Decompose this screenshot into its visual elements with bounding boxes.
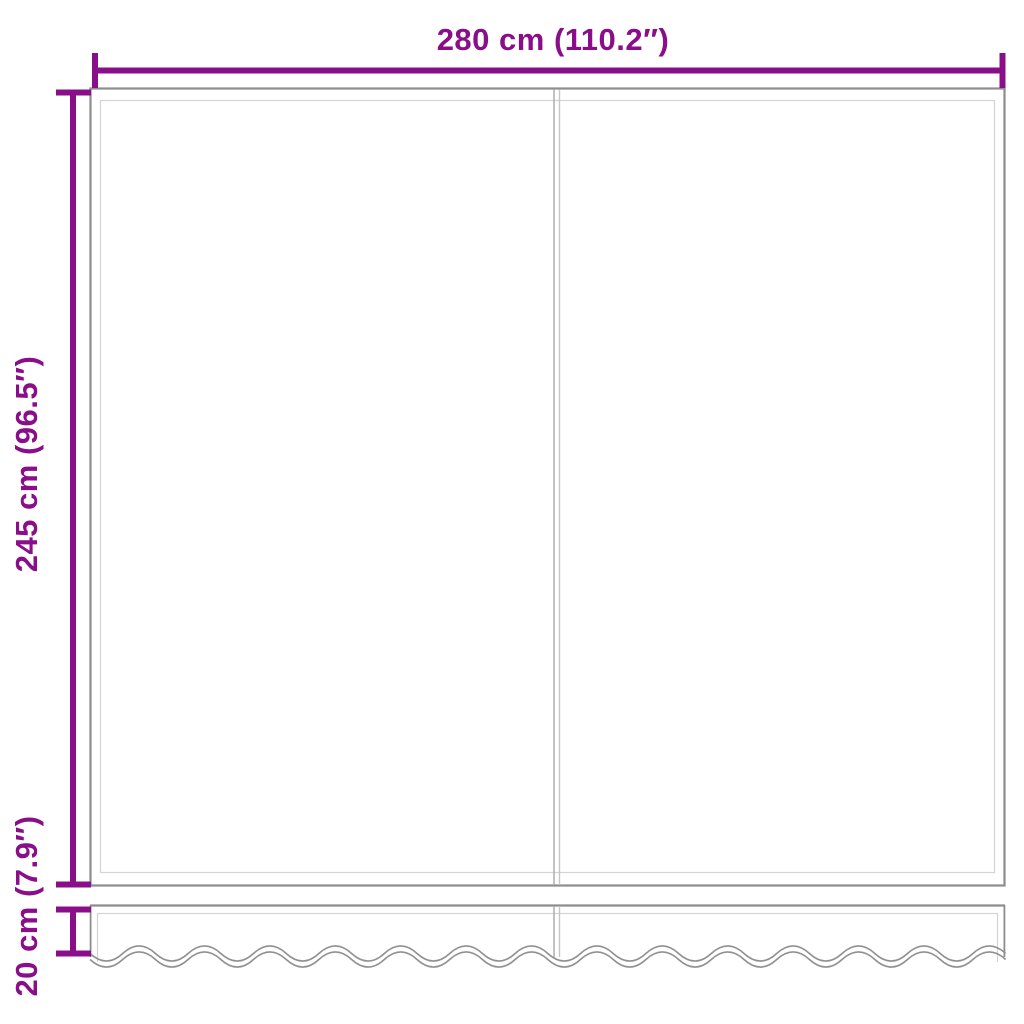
valance-wave-group <box>90 946 1006 967</box>
width-dimension-label: 280 cm (110.2″) <box>437 22 670 58</box>
center-seam-group <box>554 90 560 958</box>
height-dimension-label: 245 cm (96.5″) <box>9 356 45 573</box>
hem-lines-group <box>98 101 998 963</box>
diagram-linework <box>0 0 1024 1024</box>
main-panel-outline <box>91 89 1005 886</box>
dimension-diagram: 280 cm (110.2″) 245 cm (96.5″) 20 cm (7.… <box>0 0 1024 1024</box>
main-panel-inner-hem <box>101 101 995 873</box>
dimension-lines-group <box>56 53 1004 954</box>
fabric-panel-group <box>90 89 1005 958</box>
valance-height-dimension-label: 20 cm (7.9″) <box>9 815 45 996</box>
